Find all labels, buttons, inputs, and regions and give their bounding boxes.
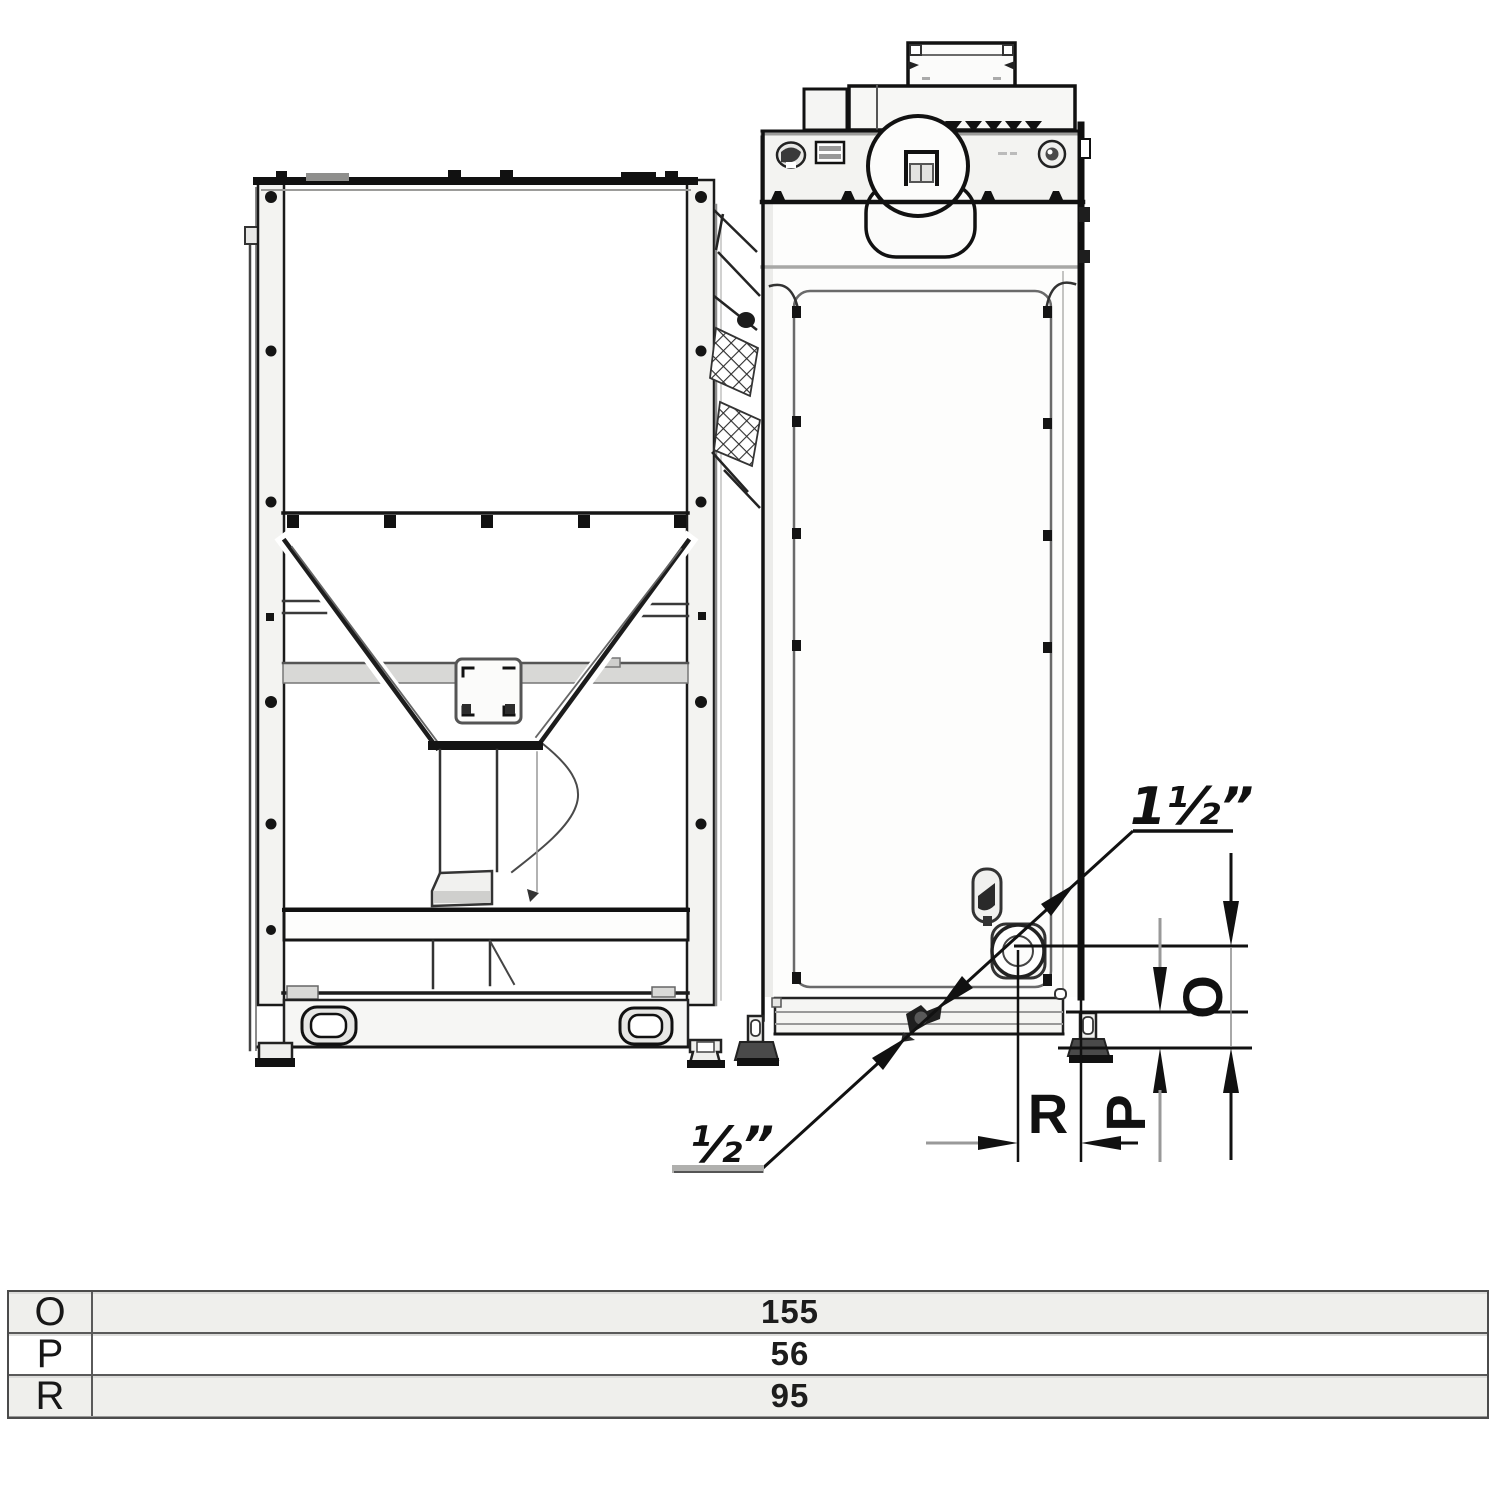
row-value: 95 [93,1376,1487,1416]
row-value: 155 [93,1292,1487,1332]
fuel-hopper [245,170,725,1068]
latch-knob-left [777,143,805,169]
row-value: 56 [93,1334,1487,1374]
table-row: O 155 [9,1292,1487,1334]
hopper-handle-cutout-left [302,1007,356,1044]
boiler-technical-drawing: O P R 1½” ½” [0,0,1500,1500]
sensor-pocket-fitting [973,869,1001,926]
flue-outlet-collar [908,43,1015,88]
connection-large-label: 1½” [1130,777,1254,837]
dimension-table: O 155 P 56 R 95 [7,1290,1489,1419]
table-row: R 95 [9,1376,1487,1417]
gauge-plate [816,142,844,163]
connection-small-label: ½” [690,1116,774,1174]
row-label: R [9,1376,93,1416]
boiler-rear-foot [1068,1013,1113,1063]
hopper-bolts [265,191,707,935]
latch-knob-right [1039,141,1065,167]
auger-feeder-connector [710,210,760,508]
row-label: O [9,1292,93,1332]
table-row: P 56 [9,1334,1487,1376]
funnel-access-plate [456,659,521,723]
hopper-handle-cutout-right [620,1008,672,1044]
dim-O-label: O [1171,975,1234,1019]
dim-P-label: P [1094,1094,1157,1131]
row-label: P [9,1334,93,1374]
dim-R-label: R [1028,1082,1068,1145]
boiler-front-foot [735,1016,779,1066]
boiler [735,43,1113,1066]
technical-drawing-page: O P R 1½” ½” O 155 P 56 R 95 [0,0,1500,1500]
